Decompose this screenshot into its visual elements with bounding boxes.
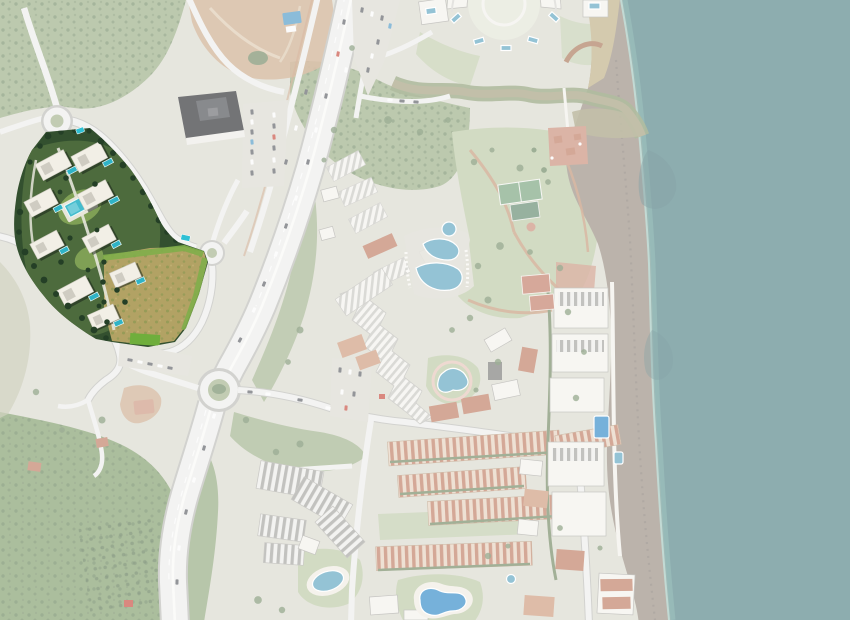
aerial-map-stage — [0, 0, 850, 620]
field-corner-lawn — [130, 333, 161, 346]
aerial-map — [0, 0, 850, 620]
